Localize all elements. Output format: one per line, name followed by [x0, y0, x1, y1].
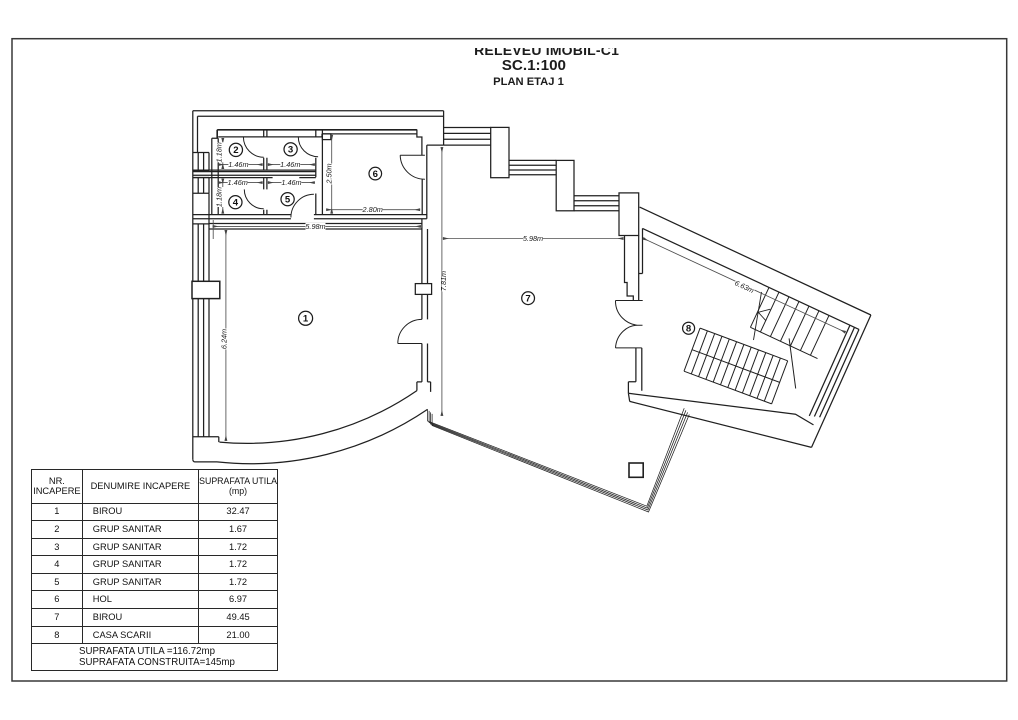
svg-text:7.81m: 7.81m [439, 271, 448, 291]
svg-text:2: 2 [233, 145, 238, 156]
svg-text:1.46m: 1.46m [228, 178, 248, 187]
svg-text:2.50m: 2.50m [324, 163, 333, 184]
svg-text:1.18m: 1.18m [214, 187, 223, 207]
svg-text:8: 8 [686, 323, 692, 334]
svg-text:1.18m: 1.18m [214, 142, 223, 162]
svg-text:1.46m: 1.46m [228, 160, 248, 169]
svg-text:5: 5 [285, 195, 291, 206]
svg-text:4: 4 [233, 198, 239, 209]
svg-text:6.63m: 6.63m [733, 278, 755, 295]
svg-text:6.24m: 6.24m [220, 329, 229, 349]
svg-text:1: 1 [303, 314, 309, 325]
svg-text:6: 6 [373, 169, 378, 180]
svg-text:5.98m: 5.98m [305, 222, 325, 231]
svg-text:5.98m: 5.98m [523, 234, 543, 243]
svg-text:1.46m: 1.46m [280, 160, 300, 169]
svg-text:2.80m: 2.80m [362, 205, 383, 214]
svg-text:3: 3 [288, 145, 293, 156]
svg-text:7: 7 [525, 294, 530, 305]
svg-text:1.46m: 1.46m [281, 178, 301, 187]
